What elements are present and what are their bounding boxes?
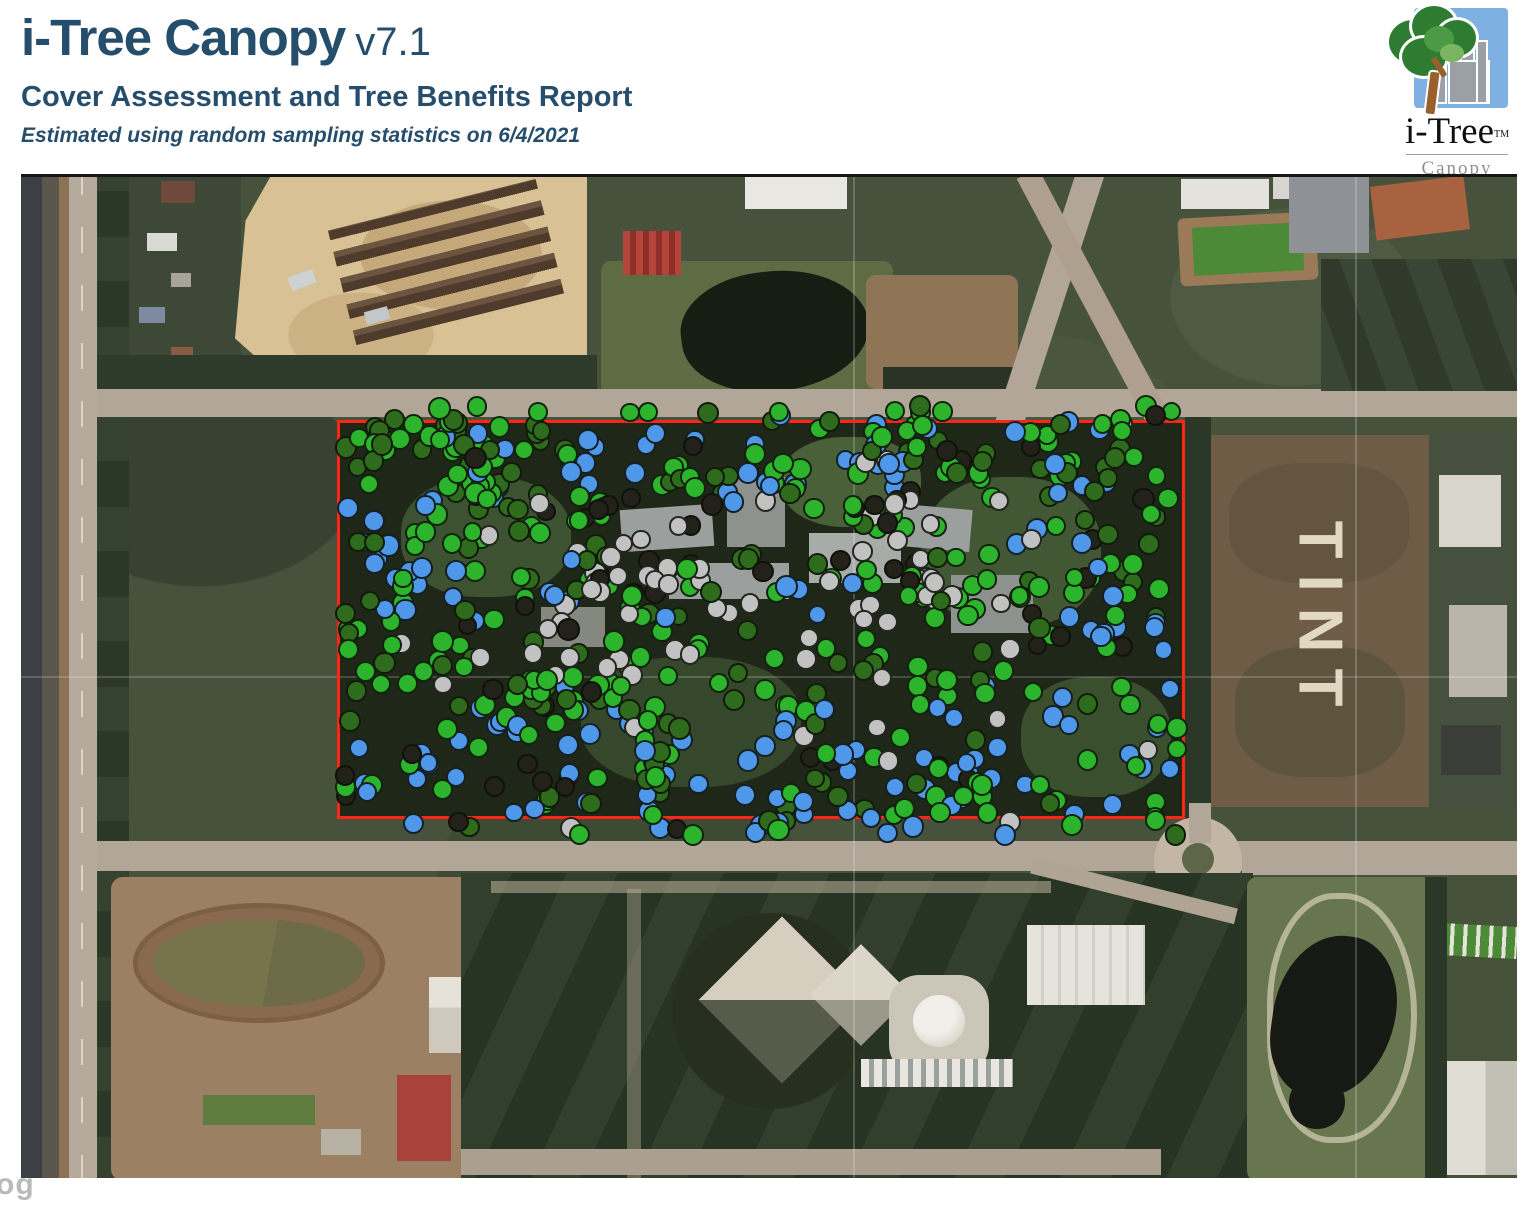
sample-point-gray bbox=[559, 647, 580, 668]
sample-point-black bbox=[517, 754, 537, 774]
sample-point-blue bbox=[624, 462, 646, 484]
sample-point-black bbox=[877, 512, 898, 533]
sample-point-blue bbox=[1059, 715, 1079, 735]
sample-point-green bbox=[382, 635, 402, 655]
logo-trademark: TM bbox=[1494, 129, 1509, 140]
sample-point-blue bbox=[1059, 606, 1080, 627]
sample-point-blue bbox=[445, 560, 467, 582]
sample-point-green bbox=[442, 533, 462, 553]
sample-point-dark-green bbox=[339, 710, 361, 732]
sample-point-green bbox=[569, 510, 590, 531]
sample-point-blue bbox=[1102, 585, 1124, 607]
sample-point-green bbox=[912, 415, 933, 436]
sample-point-gray bbox=[988, 709, 1008, 729]
sample-point-dark-green bbox=[364, 532, 385, 553]
sample-point-gray bbox=[878, 750, 899, 771]
sample-point-green bbox=[816, 743, 837, 764]
sample-point-blue bbox=[544, 585, 565, 606]
sample-point-green bbox=[1147, 466, 1167, 486]
sample-point-green bbox=[1046, 516, 1066, 536]
sample-point-dark-green bbox=[927, 547, 948, 568]
sample-point-green bbox=[946, 548, 966, 568]
sample-point-green bbox=[890, 727, 911, 748]
sample-point-dark-green bbox=[1165, 824, 1186, 845]
sample-point-green bbox=[569, 824, 591, 846]
sample-point-dark-green bbox=[449, 696, 469, 716]
sample-point-green bbox=[843, 495, 864, 516]
sample-point-black bbox=[581, 681, 603, 703]
app-title: i-Tree Canopy bbox=[21, 9, 345, 66]
sample-point-dark-green bbox=[819, 411, 840, 432]
sample-point-green bbox=[569, 486, 590, 507]
sample-point-dark-green bbox=[1028, 617, 1050, 639]
sample-point-blue bbox=[415, 495, 435, 515]
sample-point-black bbox=[448, 812, 468, 832]
sample-point-gray bbox=[608, 566, 628, 586]
sample-point-blue bbox=[737, 749, 759, 771]
sample-point-green bbox=[894, 798, 915, 819]
sample-point-green bbox=[1124, 447, 1144, 467]
sample-point-green bbox=[658, 666, 678, 686]
aerial-map: TINT bbox=[21, 174, 1517, 1178]
sample-point-green bbox=[489, 416, 510, 437]
sample-point-blue bbox=[579, 723, 601, 745]
sample-point-dark-green bbox=[454, 600, 475, 621]
sample-point-dark-green bbox=[805, 769, 825, 789]
report-title: Cover Assessment and Tree Benefits Repor… bbox=[21, 81, 632, 114]
sample-point-green bbox=[477, 489, 497, 509]
sample-point-blue bbox=[878, 453, 900, 475]
sample-point-blue bbox=[814, 699, 835, 720]
sample-point-gray bbox=[867, 718, 887, 738]
sample-point-blue bbox=[885, 777, 905, 797]
sample-point-black bbox=[1145, 405, 1166, 426]
sample-point-gray bbox=[680, 644, 701, 665]
sample-point-black bbox=[1050, 626, 1071, 647]
sample-point-dark-green bbox=[946, 462, 968, 484]
sample-point-dark-green bbox=[827, 786, 849, 808]
sample-point-green bbox=[907, 656, 928, 677]
sample-point-green bbox=[932, 401, 952, 421]
sample-point-green bbox=[545, 713, 566, 734]
sample-point-gray bbox=[872, 668, 892, 688]
sample-point-green bbox=[1167, 739, 1187, 759]
sample-point-green bbox=[483, 609, 504, 630]
sample-point-gray bbox=[433, 675, 453, 695]
sample-point-black bbox=[335, 765, 355, 785]
sample-point-gray bbox=[991, 594, 1011, 614]
sample-point-green bbox=[929, 802, 950, 823]
sample-point-blue bbox=[688, 774, 708, 794]
sample-point-green bbox=[907, 437, 927, 457]
sample-point-green bbox=[338, 639, 359, 660]
sample-point-gray bbox=[852, 541, 873, 562]
sample-point-gray bbox=[999, 638, 1021, 660]
sample-point-green bbox=[562, 666, 584, 688]
sample-point-blue bbox=[1160, 679, 1180, 699]
sample-point-green bbox=[978, 544, 1000, 566]
sample-point-gray bbox=[854, 610, 874, 630]
sample-point-black bbox=[402, 744, 422, 764]
sample-point-blue bbox=[808, 605, 828, 625]
sample-point-blue bbox=[734, 784, 756, 806]
sample-point-blue bbox=[957, 753, 977, 773]
sample-point-green bbox=[803, 498, 824, 519]
sample-point-dark-green bbox=[931, 591, 951, 611]
sample-point-gray bbox=[529, 493, 550, 514]
sample-point-gray bbox=[884, 493, 905, 514]
sample-point-blue bbox=[861, 808, 881, 828]
sample-point-green bbox=[603, 630, 625, 652]
sample-point-green bbox=[529, 522, 551, 544]
sample-point-gray bbox=[989, 491, 1009, 511]
sample-point-gray bbox=[631, 530, 651, 550]
logo-divider bbox=[1406, 154, 1508, 155]
sample-point-blue bbox=[357, 782, 377, 802]
sample-point-green bbox=[1030, 775, 1050, 795]
sample-point-blue bbox=[1071, 532, 1093, 554]
sample-point-black bbox=[588, 499, 609, 520]
sample-point-blue bbox=[577, 429, 599, 451]
sample-point-blue bbox=[760, 476, 780, 496]
sample-point-blue bbox=[337, 497, 359, 519]
sample-point-dark-green bbox=[972, 451, 994, 473]
sample-point-green bbox=[957, 605, 979, 627]
sample-point-blue bbox=[944, 708, 964, 728]
sample-point-blue bbox=[560, 461, 582, 483]
sample-point-green bbox=[587, 768, 607, 788]
sample-point-black bbox=[555, 777, 575, 797]
sample-point-green bbox=[974, 683, 995, 704]
sample-point-green bbox=[359, 474, 379, 494]
sample-point-dark-green bbox=[507, 499, 528, 520]
sample-point-dark-green bbox=[728, 663, 748, 683]
sample-point-green bbox=[630, 646, 651, 667]
sample-point-dark-green bbox=[972, 641, 994, 663]
sample-point-dark-green bbox=[737, 620, 758, 641]
sample-point-green bbox=[463, 522, 483, 542]
sample-point-gray bbox=[669, 516, 689, 536]
sample-point-black bbox=[557, 618, 579, 640]
sample-point-green bbox=[772, 453, 794, 475]
sample-point-green bbox=[447, 464, 467, 484]
sample-point-green bbox=[621, 585, 643, 607]
itree-canopy-logo: i-TreeTM Canopy bbox=[1398, 4, 1516, 172]
sample-point-dark-green bbox=[705, 467, 725, 487]
sample-point-green bbox=[754, 679, 776, 701]
sample-point-green bbox=[977, 802, 999, 824]
app-title-line: i-Tree Canopyv7.1 bbox=[21, 8, 632, 67]
sample-point-green bbox=[1166, 717, 1188, 739]
sample-point-dark-green bbox=[508, 520, 530, 542]
sample-point-green bbox=[528, 402, 548, 422]
sample-point-green bbox=[431, 630, 453, 652]
sample-point-blue bbox=[775, 575, 797, 597]
sample-point-dark-green bbox=[909, 395, 931, 417]
sample-point-green bbox=[638, 402, 658, 422]
sample-point-green bbox=[436, 718, 458, 740]
sample-point-black bbox=[683, 436, 703, 456]
sample-point-blue bbox=[634, 740, 656, 762]
sample-point-blue bbox=[877, 823, 898, 844]
sample-point-green bbox=[1148, 578, 1170, 600]
sample-point-blue bbox=[1154, 640, 1174, 660]
sample-point-blue bbox=[562, 550, 582, 570]
logo-tree-highlight-icon bbox=[1440, 44, 1464, 62]
sample-point-dark-green bbox=[1040, 793, 1060, 813]
sample-point-green bbox=[432, 779, 454, 801]
sample-point-green bbox=[413, 661, 434, 682]
sample-point-green bbox=[454, 657, 474, 677]
report-header: i-Tree Canopyv7.1 Cover Assessment and T… bbox=[21, 8, 632, 148]
sample-point-gray bbox=[795, 648, 817, 670]
sample-point-green bbox=[467, 396, 488, 417]
sample-point-green bbox=[936, 669, 958, 691]
sample-point-dark-green bbox=[1097, 524, 1118, 545]
sample-point-green bbox=[645, 766, 666, 787]
sample-point-green bbox=[519, 725, 539, 745]
sample-point-gray bbox=[597, 657, 618, 678]
sample-point-green bbox=[1077, 749, 1098, 770]
google-watermark-fragment: og bbox=[0, 1168, 35, 1202]
sample-point-blue bbox=[754, 735, 776, 757]
sample-points-layer bbox=[21, 177, 1517, 1178]
sample-point-blue bbox=[524, 799, 544, 819]
sample-point-blue bbox=[1160, 759, 1180, 779]
sample-point-blue bbox=[349, 738, 369, 758]
sample-point-green bbox=[468, 737, 489, 758]
sample-point-green bbox=[764, 648, 785, 669]
sample-point-blue bbox=[557, 734, 579, 756]
sample-point-green bbox=[643, 805, 663, 825]
sample-point-dark-green bbox=[700, 581, 722, 603]
sample-point-dark-green bbox=[1098, 468, 1118, 488]
sample-point-dark-green bbox=[580, 793, 602, 815]
sample-point-green bbox=[511, 567, 531, 587]
sample-point-blue bbox=[928, 698, 948, 718]
sample-point-green bbox=[885, 401, 905, 421]
sample-point-green bbox=[928, 758, 949, 779]
sample-point-green bbox=[856, 629, 876, 649]
sample-point-green bbox=[676, 558, 698, 580]
sample-point-green bbox=[611, 676, 631, 696]
sample-point-green bbox=[977, 569, 998, 590]
sample-point-blue bbox=[655, 607, 675, 627]
sample-point-green bbox=[415, 521, 436, 542]
sample-point-blue bbox=[504, 803, 524, 823]
sample-point-gray bbox=[799, 628, 819, 648]
sample-point-green bbox=[1093, 414, 1113, 434]
sample-point-green bbox=[769, 402, 789, 422]
sample-point-green bbox=[1157, 488, 1178, 509]
sample-point-blue bbox=[1144, 617, 1165, 638]
sample-point-gray bbox=[1021, 529, 1042, 550]
sample-point-green bbox=[428, 397, 450, 419]
sample-point-blue bbox=[363, 510, 385, 532]
sample-point-dark-green bbox=[853, 660, 874, 681]
sample-point-green bbox=[856, 560, 876, 580]
sample-point-green bbox=[1111, 677, 1131, 697]
sample-point-dark-green bbox=[668, 717, 690, 739]
sample-point-gray bbox=[877, 612, 898, 633]
sample-point-gray bbox=[658, 574, 678, 594]
app-version: v7.1 bbox=[355, 20, 431, 64]
sample-point-black bbox=[830, 550, 852, 572]
sample-point-blue bbox=[1088, 558, 1108, 578]
sample-point-blue bbox=[723, 491, 744, 512]
report-subtitle: Estimated using random sampling statisti… bbox=[21, 124, 632, 148]
sample-point-dark-green bbox=[723, 689, 745, 711]
sample-point-green bbox=[709, 673, 729, 693]
sample-point-green bbox=[993, 660, 1015, 682]
sample-point-dark-green bbox=[1075, 510, 1095, 530]
sample-point-green bbox=[682, 824, 704, 846]
sample-point-dark-green bbox=[965, 729, 986, 750]
sample-point-gray bbox=[538, 619, 559, 640]
sample-point-blue bbox=[773, 720, 794, 741]
sample-point-blue bbox=[403, 813, 424, 834]
sample-point-green bbox=[1061, 814, 1083, 836]
sample-point-blue bbox=[1048, 483, 1068, 503]
sample-point-green bbox=[1119, 694, 1140, 715]
sample-point-dark-green bbox=[371, 433, 393, 455]
sample-point-dark-green bbox=[1104, 447, 1126, 469]
sample-point-green bbox=[620, 403, 640, 423]
logo-brand-text: i-TreeTM bbox=[1398, 110, 1516, 153]
sample-point-green bbox=[767, 819, 789, 841]
sample-point-blue bbox=[364, 553, 384, 573]
sample-point-blue bbox=[1102, 794, 1123, 815]
sample-point-green bbox=[1145, 810, 1166, 831]
sample-point-blue bbox=[645, 423, 666, 444]
sample-point-dark-green bbox=[373, 652, 395, 674]
sample-point-blue bbox=[411, 557, 433, 579]
sample-point-blue bbox=[1090, 626, 1111, 647]
sample-point-green bbox=[744, 443, 766, 465]
sample-point-black bbox=[752, 561, 773, 582]
sample-point-dark-green bbox=[432, 655, 453, 676]
sample-point-gray bbox=[523, 643, 544, 664]
sample-point-dark-green bbox=[779, 483, 800, 504]
sample-point-black bbox=[621, 488, 641, 508]
sample-point-green bbox=[1028, 576, 1050, 598]
sample-point-dark-green bbox=[1077, 693, 1099, 715]
sample-point-green bbox=[1023, 682, 1043, 702]
sample-point-dark-green bbox=[360, 591, 380, 611]
sample-point-dark-green bbox=[697, 402, 719, 424]
sample-point-green bbox=[899, 586, 919, 606]
sample-point-dark-green bbox=[828, 653, 848, 673]
sample-point-green bbox=[638, 710, 659, 731]
logo-city-building-icon bbox=[1476, 40, 1488, 104]
sample-point-blue bbox=[994, 824, 1016, 846]
sample-point-green bbox=[1112, 421, 1132, 441]
sample-point-blue bbox=[987, 737, 1008, 758]
sample-point-green bbox=[871, 426, 893, 448]
sample-point-dark-green bbox=[346, 680, 367, 701]
sample-point-gray bbox=[740, 593, 760, 613]
sample-point-black bbox=[484, 776, 505, 797]
sample-point-green bbox=[1122, 553, 1144, 575]
sample-point-black bbox=[515, 596, 535, 616]
sample-point-dark-green bbox=[501, 462, 522, 483]
sample-point-black bbox=[464, 447, 486, 469]
sample-point-gray bbox=[1138, 740, 1158, 760]
sample-point-green bbox=[355, 661, 376, 682]
sample-point-dark-green bbox=[1138, 533, 1160, 555]
sample-point-dark-green bbox=[807, 553, 828, 574]
sample-point-gray bbox=[600, 546, 622, 568]
sample-point-green bbox=[464, 560, 486, 582]
sample-point-black bbox=[482, 679, 504, 701]
sample-point-green bbox=[910, 694, 930, 714]
sample-point-dark-green bbox=[335, 603, 356, 624]
